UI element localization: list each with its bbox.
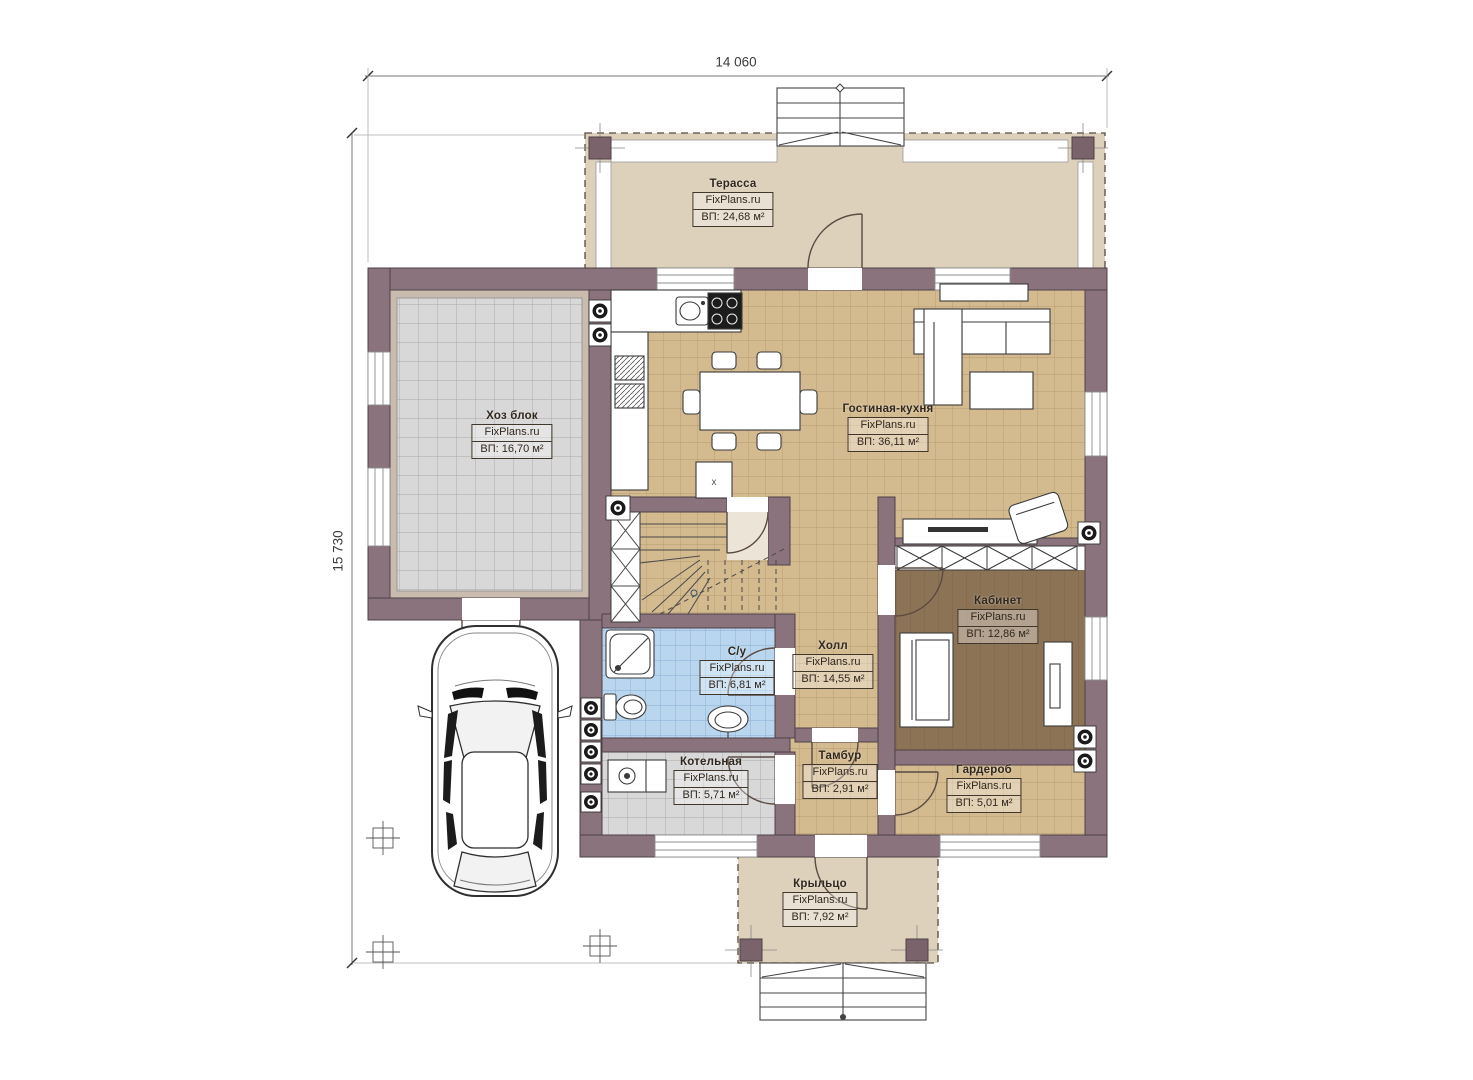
car-windshield bbox=[450, 701, 540, 758]
floor-plan-drawing: x bbox=[0, 0, 1473, 1080]
utility-floor bbox=[397, 298, 582, 591]
console-table bbox=[940, 284, 1028, 301]
floor-hatch: x bbox=[696, 462, 732, 498]
car bbox=[418, 626, 572, 896]
office-sofa bbox=[900, 633, 953, 727]
chair bbox=[757, 352, 781, 369]
hall-vestibule-floor bbox=[790, 497, 878, 835]
coffee-table bbox=[970, 372, 1033, 409]
stove-icon bbox=[708, 293, 742, 329]
desk bbox=[1044, 642, 1072, 726]
chair bbox=[757, 433, 781, 450]
vent-shaft-column bbox=[611, 512, 640, 622]
porch-area bbox=[725, 855, 943, 1020]
terrace-roof-edge bbox=[903, 140, 1068, 162]
terrace-post bbox=[589, 137, 611, 159]
column-marker bbox=[366, 935, 400, 969]
boiler-unit bbox=[608, 760, 666, 792]
toilet-icon bbox=[604, 694, 646, 720]
chair bbox=[683, 390, 700, 414]
wardrobe-cabinets bbox=[897, 546, 1077, 570]
chair bbox=[712, 352, 736, 369]
sink-icon bbox=[676, 297, 708, 325]
vent-icon bbox=[581, 792, 601, 812]
column-marker bbox=[583, 929, 617, 963]
dimension-width-label: 14 060 bbox=[715, 55, 756, 70]
porch-steps bbox=[760, 963, 926, 1020]
chair bbox=[712, 433, 736, 450]
vent-icon bbox=[581, 742, 601, 762]
terrace-roof-edge bbox=[611, 140, 777, 162]
shower-icon bbox=[606, 630, 654, 678]
wardrobe-floor bbox=[895, 765, 1085, 835]
window bbox=[1085, 617, 1107, 680]
vent-icon bbox=[606, 496, 630, 520]
vent-icon bbox=[1074, 750, 1096, 772]
car-rear-window bbox=[454, 852, 536, 892]
vent-icon bbox=[589, 324, 611, 346]
porch-post bbox=[740, 939, 762, 961]
window bbox=[657, 268, 734, 290]
chair bbox=[800, 390, 817, 414]
window bbox=[368, 352, 390, 405]
vent-icon bbox=[1074, 726, 1096, 748]
car-roof bbox=[462, 752, 528, 848]
car-mirror bbox=[558, 706, 572, 718]
floor-hatch-mark: x bbox=[712, 477, 717, 488]
dimension-height-label: 15 730 bbox=[331, 530, 346, 571]
window bbox=[655, 835, 757, 857]
vent-icon bbox=[581, 720, 601, 740]
terrace-steps bbox=[777, 84, 904, 146]
terrace-post bbox=[1072, 137, 1094, 159]
vent-icon bbox=[1078, 522, 1100, 544]
terrace-area bbox=[575, 84, 1108, 270]
floor-plan-canvas: x bbox=[0, 0, 1473, 1080]
vent-icon bbox=[581, 764, 601, 784]
window bbox=[940, 835, 1040, 857]
car-mirror bbox=[418, 706, 432, 718]
oven-icon bbox=[615, 384, 644, 408]
window bbox=[368, 468, 390, 546]
porch-post bbox=[906, 939, 928, 961]
oven-icon bbox=[615, 356, 644, 380]
vent-icon bbox=[589, 300, 611, 322]
column-marker bbox=[366, 821, 400, 855]
vent-icon bbox=[581, 698, 601, 718]
window bbox=[1085, 392, 1107, 456]
